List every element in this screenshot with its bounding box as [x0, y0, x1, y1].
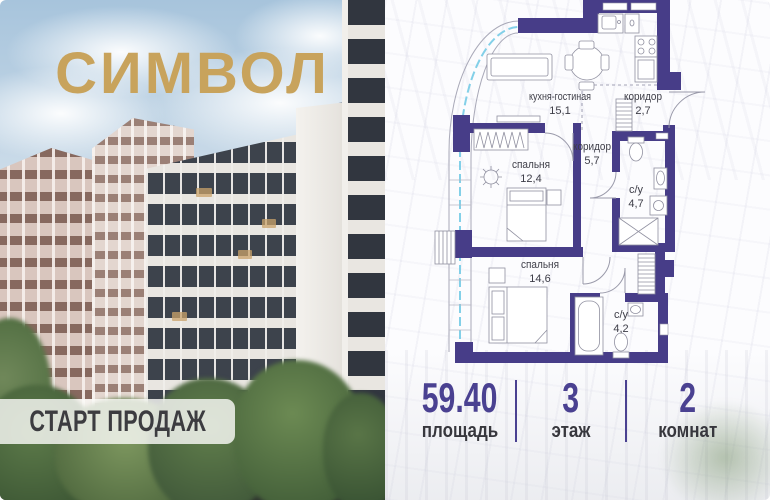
room-label-bathroom1: с/у [629, 184, 644, 196]
sales-start-label: СТАРТ ПРОДАЖ [29, 405, 206, 439]
brand-logo: СИМВОЛ [0, 40, 385, 107]
toilet [628, 137, 644, 143]
chair [579, 82, 594, 90]
lit-window [172, 312, 187, 321]
bed [489, 287, 547, 343]
floorplan-drawing: кухня-гостиная 15,1 коридор 2,7 коридор … [385, 0, 770, 375]
floorplan-panel: кухня-гостиная 15,1 коридор 2,7 коридор … [385, 0, 770, 500]
sales-start-banner: СТАРТ ПРОДАЖ [0, 399, 235, 444]
lit-window [238, 250, 252, 259]
room-label-bedroom1: спальня [512, 159, 550, 171]
hall-cabinets [616, 99, 655, 294]
stat-floor: 3 этаж [516, 378, 626, 443]
room-area-bedroom1: 12,4 [520, 173, 541, 185]
stat-area: 59.40 площадь [403, 378, 516, 443]
room-area-bedroom2: 14,6 [529, 273, 550, 285]
stat-floor-label: этаж [551, 420, 590, 443]
toilet [615, 333, 628, 351]
bedside-table [547, 190, 561, 205]
dishwasher [625, 14, 639, 33]
room-label-kitchen: кухня-гостиная [529, 91, 591, 103]
chair [579, 41, 594, 49]
stat-area-label: площадь [421, 420, 497, 443]
room-label-corridor1: коридор [624, 91, 662, 103]
bedroom1-fixtures [474, 129, 561, 241]
room-area-corridor2: 5,7 [584, 155, 599, 167]
building-photo: СИМВОЛ СТАРТ ПРОДАЖ [0, 0, 385, 500]
bedside-table [489, 268, 505, 283]
stat-rooms-value: 2 [680, 378, 697, 418]
lit-window [196, 188, 212, 197]
room-label-corridor2: коридор [573, 141, 611, 153]
room-label-bathroom2: с/у [614, 309, 629, 321]
room-area-bathroom2: 4,2 [613, 323, 628, 335]
room-area-bathroom1: 4,7 [628, 198, 643, 210]
stat-floor-value: 3 [563, 378, 580, 418]
stat-rooms-label: комнат [658, 420, 717, 443]
tv-console [497, 116, 540, 122]
stat-area-value: 59.40 [422, 378, 498, 418]
dining-table [570, 46, 604, 80]
bathroom2-fixtures [575, 297, 643, 358]
room-area-kitchen: 15,1 [549, 105, 570, 117]
room-label-bedroom2: спальня [521, 259, 559, 271]
plant [484, 170, 498, 184]
stat-rooms: 2 комнат [626, 378, 750, 443]
washing-machine [650, 196, 667, 215]
chair [601, 55, 609, 70]
room-area-corridor1: 2,7 [635, 105, 650, 117]
listing-card[interactable]: СИМВОЛ СТАРТ ПРОДАЖ [0, 0, 770, 500]
ac-unit [435, 231, 455, 264]
stats-bar: 59.40 площадь 3 этаж 2 комнат [385, 372, 770, 462]
tree [323, 393, 385, 500]
lit-window [262, 219, 276, 228]
chair [565, 55, 573, 70]
